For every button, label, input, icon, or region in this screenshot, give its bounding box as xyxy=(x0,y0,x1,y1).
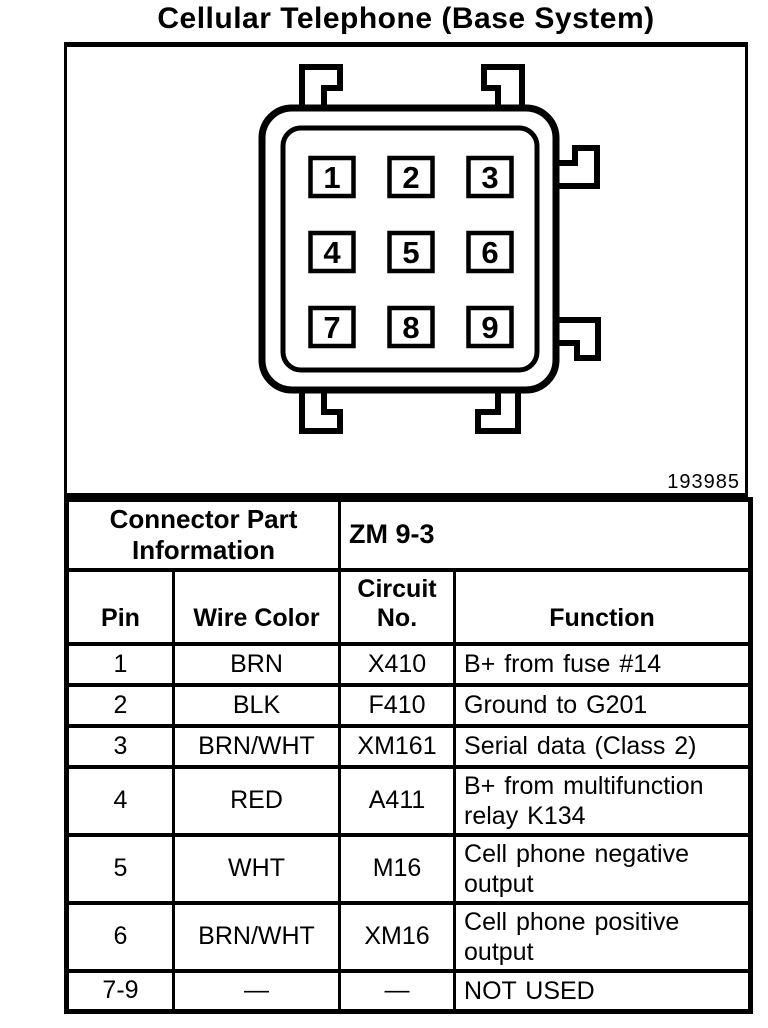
header-function: Function xyxy=(455,570,751,644)
cell-circuit-no: XM161 xyxy=(340,726,455,767)
part-info-label: Connector Part Information xyxy=(67,500,340,570)
pin-number-label: 5 xyxy=(402,235,419,270)
cell-circuit-no: XM16 xyxy=(340,903,455,971)
cell-wire-color: BRN/WHT xyxy=(174,726,340,767)
pin-number-label: 3 xyxy=(481,160,498,195)
cell-pin: 2 xyxy=(67,685,174,726)
pin-row-7-9: 7-9——NOT USED xyxy=(67,971,751,1012)
cell-wire-color: BLK xyxy=(174,685,340,726)
cell-function: Serial data (Class 2) xyxy=(455,726,751,767)
pin-3: 3 xyxy=(469,158,512,196)
cell-circuit-no: X410 xyxy=(340,644,455,685)
pin-row-3: 3BRN/WHTXM161Serial data (Class 2) xyxy=(67,726,751,767)
tab-top-right-icon xyxy=(484,67,522,111)
cell-function: B+ from multifunction relay K134 xyxy=(455,767,751,835)
pin-number-label: 6 xyxy=(481,235,498,270)
cell-function: Ground to G201 xyxy=(455,685,751,726)
header-circuit-no: Circuit No. xyxy=(340,570,455,644)
pin-8: 8 xyxy=(390,308,433,346)
pin-1: 1 xyxy=(311,158,354,196)
connector-drawing: 123456789 193985 xyxy=(64,42,748,497)
tab-right-upper-icon xyxy=(553,148,597,186)
connector-id: ZM 9-3 xyxy=(340,500,751,570)
pin-row-1: 1BRNX410B+ from fuse #14 xyxy=(67,644,751,685)
cell-circuit-no: A411 xyxy=(340,767,455,835)
cell-circuit-no: — xyxy=(340,971,455,1012)
cell-wire-color: BRN/WHT xyxy=(174,903,340,971)
tab-top-left-icon xyxy=(302,67,340,111)
cell-function: Cell phone negative output xyxy=(455,835,751,903)
pin-9: 9 xyxy=(469,308,512,346)
cell-pin: 1 xyxy=(67,644,174,685)
cell-pin: 6 xyxy=(67,903,174,971)
pin-number-label: 8 xyxy=(402,310,419,345)
pin-row-6: 6BRN/WHTXM16Cell phone positive output xyxy=(67,903,751,971)
pin-number-label: 2 xyxy=(402,160,419,195)
pin-number-label: 1 xyxy=(323,160,340,195)
cell-pin: 5 xyxy=(67,835,174,903)
pin-5: 5 xyxy=(390,233,433,271)
cell-wire-color: — xyxy=(174,971,340,1012)
pin-7: 7 xyxy=(311,308,354,346)
pin-number-label: 9 xyxy=(481,310,498,345)
pin-number-label: 7 xyxy=(323,310,340,345)
cell-function: B+ from fuse #14 xyxy=(455,644,751,685)
cell-wire-color: BRN xyxy=(174,644,340,685)
cell-pin: 7-9 xyxy=(67,971,174,1012)
pin-number-label: 4 xyxy=(323,235,341,270)
header-wire-color: Wire Color xyxy=(174,570,340,644)
figure-number: 193985 xyxy=(667,471,740,493)
tab-right-lower-icon xyxy=(553,320,598,358)
cell-function: Cell phone positive output xyxy=(455,903,751,971)
cell-wire-color: WHT xyxy=(174,835,340,903)
column-header-row: Pin Wire Color Circuit No. Function xyxy=(67,570,751,644)
manual-page: Cellular Telephone (Base System) 1234567… xyxy=(0,0,768,1028)
page-title: Cellular Telephone (Base System) xyxy=(64,2,748,36)
cell-wire-color: RED xyxy=(174,767,340,835)
cell-circuit-no: F410 xyxy=(340,685,455,726)
connector-diagram-box: 123456789 193985 xyxy=(64,42,748,497)
pin-row-4: 4REDA411B+ from multifunction relay K134 xyxy=(67,767,751,835)
connector-pins: 123456789 xyxy=(311,158,512,346)
pin-4: 4 xyxy=(311,233,354,271)
cell-circuit-no: M16 xyxy=(340,835,455,903)
header-pin: Pin xyxy=(67,570,174,644)
pin-row-5: 5WHTM16Cell phone negative output xyxy=(67,835,751,903)
cell-function: NOT USED xyxy=(455,971,751,1012)
tab-bottom-right-icon xyxy=(478,387,518,431)
connector-table: Connector Part Information ZM 9-3 Pin Wi… xyxy=(64,497,753,1014)
pin-6: 6 xyxy=(469,233,512,271)
cell-pin: 4 xyxy=(67,767,174,835)
part-info-row: Connector Part Information ZM 9-3 xyxy=(67,500,751,570)
pin-row-2: 2BLKF410Ground to G201 xyxy=(67,685,751,726)
tab-bottom-left-icon xyxy=(302,387,340,431)
cell-pin: 3 xyxy=(67,726,174,767)
pin-2: 2 xyxy=(390,158,433,196)
